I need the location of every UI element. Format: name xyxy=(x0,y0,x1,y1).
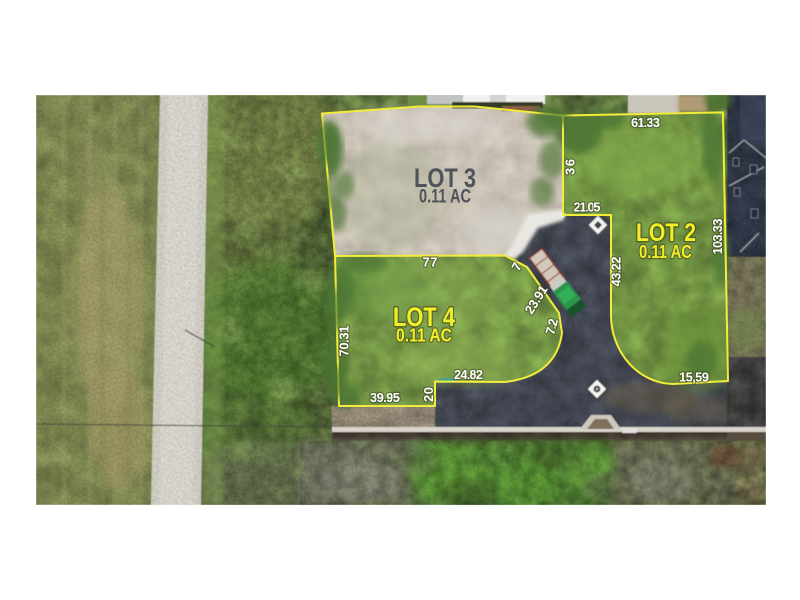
svg-text:24.82: 24.82 xyxy=(454,367,483,382)
svg-text:77: 77 xyxy=(423,255,438,270)
svg-text:0.11 AC: 0.11 AC xyxy=(639,242,692,262)
svg-text:36: 36 xyxy=(563,159,578,175)
svg-text:20: 20 xyxy=(421,387,436,402)
svg-text:21.05: 21.05 xyxy=(574,200,601,215)
svg-text:103.33: 103.33 xyxy=(710,219,725,255)
svg-text:43.22: 43.22 xyxy=(609,257,624,287)
svg-text:0.11 AC: 0.11 AC xyxy=(419,187,471,208)
svg-text:0.11 AC: 0.11 AC xyxy=(396,325,452,346)
svg-text:15,59: 15,59 xyxy=(679,369,709,384)
svg-text:39.95: 39.95 xyxy=(370,390,400,405)
svg-text:70.31: 70.31 xyxy=(337,326,352,357)
svg-text:61.33: 61.33 xyxy=(631,115,660,130)
